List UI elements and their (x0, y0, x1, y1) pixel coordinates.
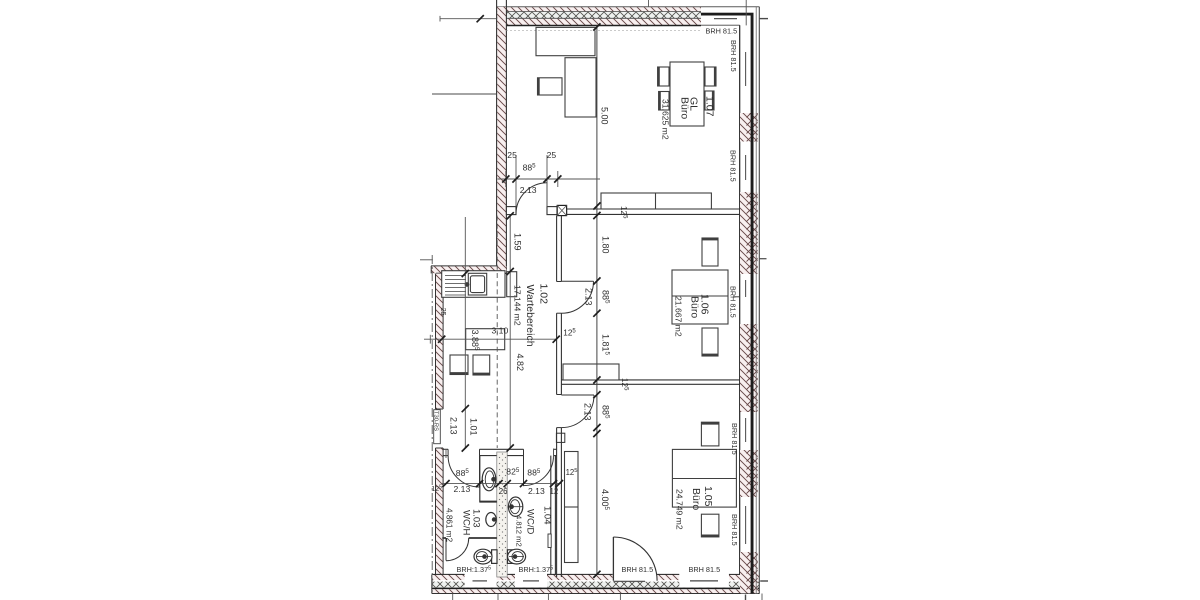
svg-text:24.749 m2: 24.749 m2 (675, 489, 685, 530)
svg-text:4.82: 4.82 (515, 354, 525, 372)
svg-text:4.812 m2: 4.812 m2 (515, 515, 524, 547)
svg-text:1.59: 1.59 (513, 233, 523, 251)
svg-text:4.861 m2: 4.861 m2 (445, 508, 454, 543)
svg-text:Wartebereich: Wartebereich (524, 285, 536, 347)
svg-text:BRH 81.5: BRH 81.5 (622, 565, 654, 574)
svg-text:31.625 m2: 31.625 m2 (661, 99, 671, 140)
svg-text:3.10: 3.10 (492, 326, 509, 336)
svg-text:BRH 81.5: BRH 81.5 (706, 26, 738, 35)
svg-text:BRH 81.5: BRH 81.5 (728, 286, 737, 318)
svg-text:1.02: 1.02 (538, 284, 550, 305)
svg-text:2.13: 2.13 (583, 403, 593, 421)
svg-text:BRH:1.375: BRH:1.375 (457, 565, 492, 574)
svg-text:17.144 m2: 17.144 m2 (513, 285, 523, 326)
svg-text:1.01: 1.01 (469, 418, 479, 436)
svg-text:1.04: 1.04 (542, 506, 553, 525)
svg-text:2.13: 2.13 (520, 185, 537, 195)
svg-text:25: 25 (439, 308, 446, 316)
svg-text:Büro: Büro (679, 97, 691, 119)
svg-text:1.80: 1.80 (601, 236, 611, 254)
svg-text:BRH:1.375: BRH:1.375 (519, 565, 554, 574)
svg-text:1.05: 1.05 (702, 486, 714, 507)
svg-text:2.13: 2.13 (454, 484, 471, 494)
svg-text:WC/H: WC/H (461, 510, 472, 535)
svg-text:Büro: Büro (690, 488, 702, 510)
svg-text:26: 26 (499, 487, 508, 496)
svg-text:2.13: 2.13 (449, 417, 459, 435)
svg-text:BRH 81.5: BRH 81.5 (730, 423, 739, 455)
svg-text:BRH 81.5: BRH 81.5 (689, 565, 721, 574)
svg-text:25: 25 (547, 150, 557, 160)
svg-text:2.13: 2.13 (584, 288, 594, 306)
svg-text:BRH 81.5: BRH 81.5 (729, 150, 738, 182)
svg-text:2.13: 2.13 (528, 486, 545, 496)
svg-text:25: 25 (507, 150, 517, 160)
svg-text:21.667 m2: 21.667 m2 (674, 296, 684, 337)
svg-text:T30-RS: T30-RS (433, 411, 439, 431)
svg-text:WC/D: WC/D (525, 509, 536, 534)
svg-text:1.07: 1.07 (704, 96, 716, 117)
svg-text:BRH 81.5: BRH 81.5 (729, 40, 738, 72)
svg-text:5.00: 5.00 (600, 107, 610, 125)
svg-text:Büro: Büro (689, 296, 701, 318)
svg-text:BRH 81.5: BRH 81.5 (730, 514, 739, 546)
svg-text:12: 12 (550, 487, 559, 496)
